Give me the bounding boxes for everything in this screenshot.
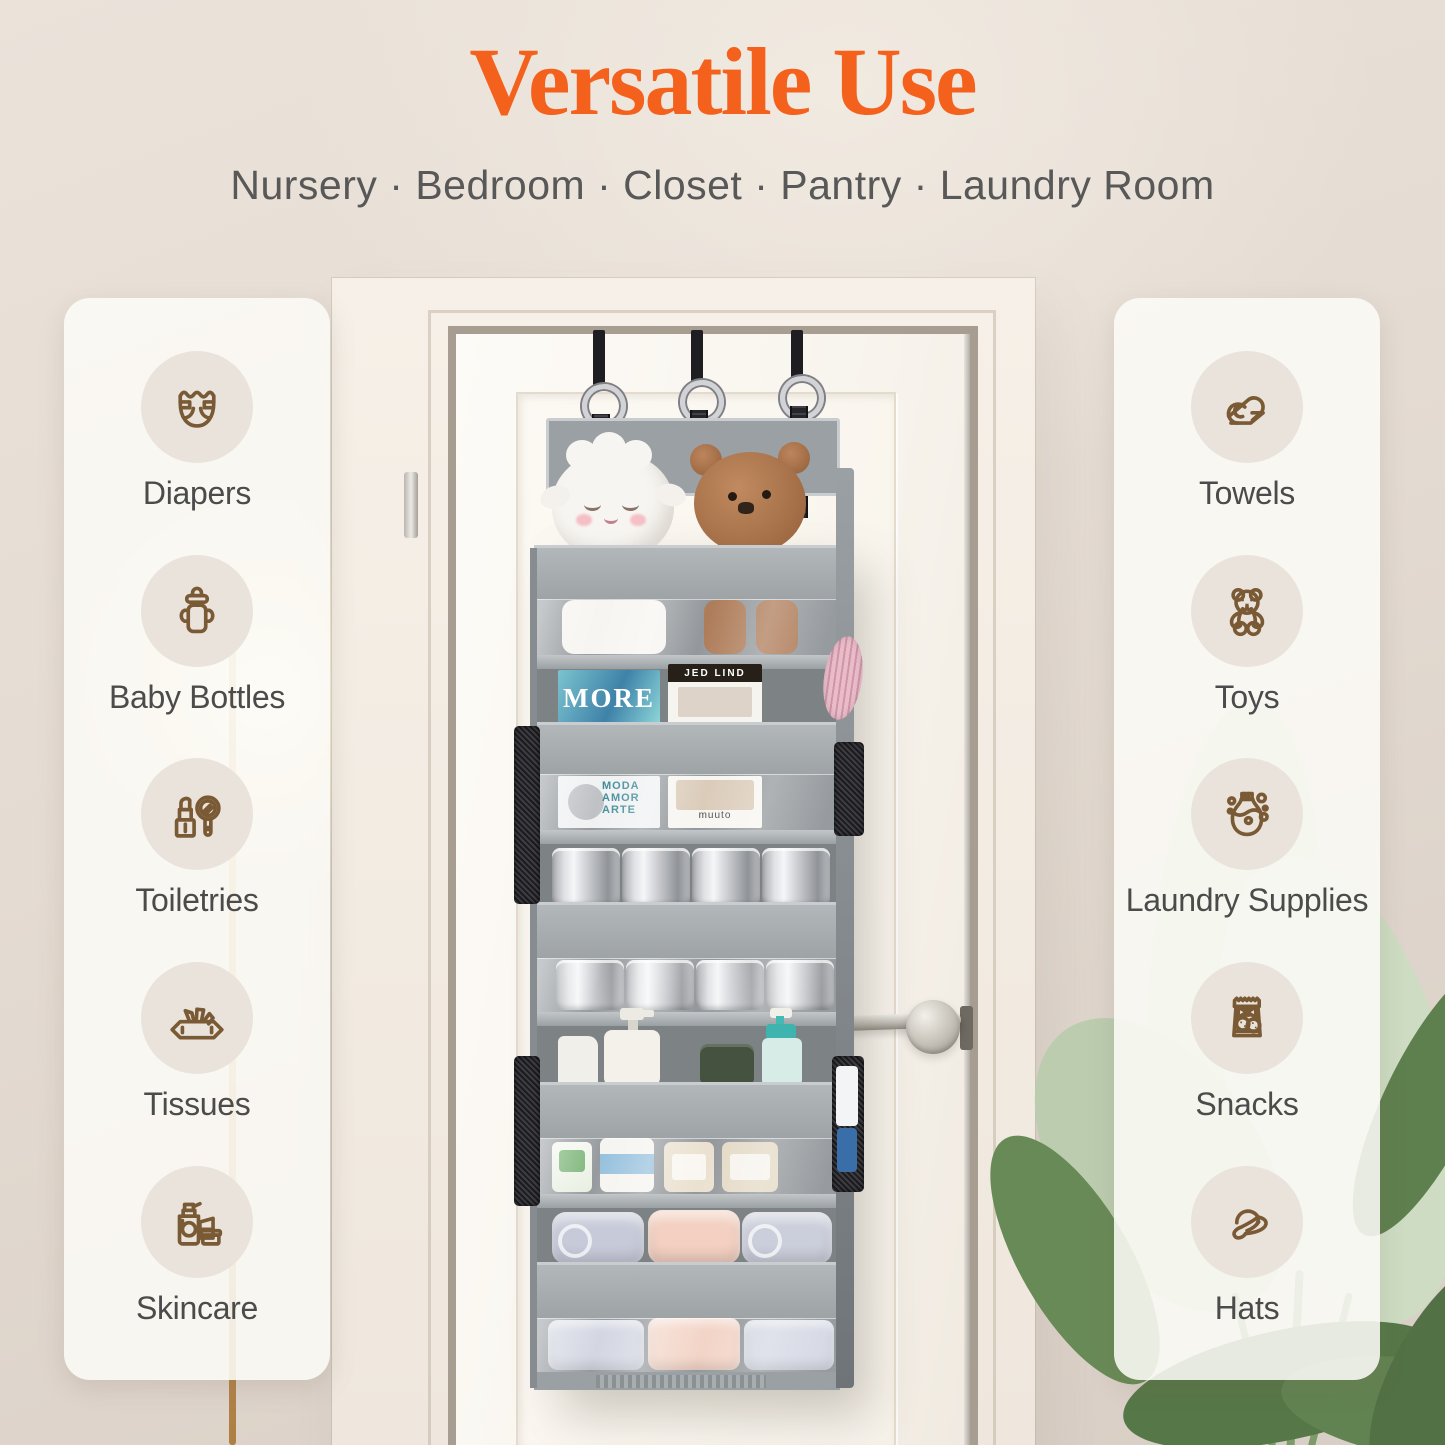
teddy-eye (728, 492, 737, 501)
towel-roll-end (558, 1224, 592, 1258)
lamb-cheek (576, 514, 592, 526)
mesh-pocket-item (837, 1128, 857, 1172)
panel-item-skincare: Skincare (136, 1166, 258, 1327)
panel-item-label: Skincare (136, 1290, 258, 1327)
panel-item-diapers: Diapers (141, 351, 253, 512)
pocket5-front-band (534, 1262, 840, 1321)
silver-canister (552, 848, 620, 906)
pocket2-plastic-sheen (534, 774, 840, 831)
baby-bottle-icon (141, 555, 253, 667)
lamb-mouth (604, 512, 618, 524)
magazine-more: MORE (558, 670, 660, 726)
silver-canister (762, 848, 830, 906)
lotion-pump-spout (642, 1010, 654, 1017)
pocket1-plastic-sheen (534, 599, 840, 656)
hanger-strap (691, 330, 703, 382)
book-cover-photo (678, 687, 752, 717)
right-use-panel: Towels Toys Laundry Supplies Snacks Hats (1114, 298, 1380, 1380)
silver-canister (622, 848, 690, 906)
panel-item-towels: Towels (1191, 351, 1303, 512)
hanger-strap (593, 330, 605, 386)
panel-item-label: Diapers (143, 475, 251, 512)
lamb-eye (622, 498, 639, 511)
book-jed-lind: JED LIND (668, 664, 762, 726)
pocket4-shelf (534, 1194, 840, 1208)
side-mesh-pocket (514, 726, 540, 904)
toiletries-icon (141, 758, 253, 870)
rolled-towel-icon (1191, 351, 1303, 463)
pocket5-plastic-sheen (534, 1318, 840, 1373)
green-bottle (700, 1044, 754, 1086)
snack-bag-icon (1191, 962, 1303, 1074)
door-hinge (404, 472, 418, 538)
page-subtitle: Nursery · Bedroom · Closet · Pantry · La… (0, 162, 1445, 209)
hanger-strap (791, 330, 803, 378)
organizer-bottom-ribbing (596, 1375, 766, 1388)
panel-item-label: Toiletries (135, 882, 258, 919)
skincare-icon (141, 1166, 253, 1278)
teal-bottle (762, 1038, 802, 1086)
white-tube (558, 1036, 598, 1088)
pocket4-plastic-sheen (534, 1138, 840, 1195)
book-title-band: JED LIND (668, 664, 762, 682)
teddy-eye (762, 490, 771, 499)
rolled-towel-gray (742, 1212, 832, 1264)
pocket3-plastic-sheen (534, 958, 840, 1013)
door-handle-rosette (906, 1000, 960, 1054)
lamb-eye (584, 498, 601, 511)
side-mesh-pocket (832, 1056, 864, 1192)
door-latch-plate (960, 1006, 973, 1050)
panel-item-tissues: Tissues (141, 962, 253, 1123)
panel-item-label: Toys (1215, 679, 1280, 716)
panel-item-baby-bottles: Baby Bottles (109, 555, 285, 716)
panel-item-laundry-supplies: Laundry Supplies (1126, 758, 1368, 919)
door-edge (964, 334, 970, 1445)
panel-item-label: Hats (1215, 1290, 1280, 1327)
silver-canister (692, 848, 760, 906)
teddy-nose (738, 502, 754, 514)
magazine-title: MORE (563, 683, 655, 714)
lamb-cheek (630, 514, 646, 526)
rolled-towel-pink (648, 1210, 740, 1264)
sun-hat-icon (1191, 1166, 1303, 1278)
panel-item-label: Laundry Supplies (1126, 882, 1368, 919)
mesh-pocket-item (836, 1066, 858, 1126)
side-mesh-pocket (514, 1056, 540, 1206)
panel-item-toiletries: Toiletries (135, 758, 258, 919)
pocket3-front-band (534, 902, 840, 961)
lotion-pump-head (620, 1008, 644, 1020)
pocket2-shelf (534, 830, 840, 844)
organizer-side-face (836, 468, 854, 1388)
left-use-panel: Diapers Baby Bottles Toiletries Tissues … (64, 298, 330, 1380)
panel-item-label: Tissues (144, 1086, 251, 1123)
panel-item-label: Snacks (1195, 1086, 1298, 1123)
towel-roll-end (748, 1224, 782, 1258)
pocket4-front-band (534, 1082, 840, 1141)
teddy-bear-icon (1191, 555, 1303, 667)
lamb-plush (552, 452, 674, 560)
panel-item-toys: Toys (1191, 555, 1303, 716)
panel-item-label: Towels (1199, 475, 1295, 512)
panel-item-hats: Hats (1191, 1166, 1303, 1327)
side-mesh-pocket (834, 742, 864, 836)
lamb-fluff (620, 440, 652, 470)
panel-item-snacks: Snacks (1191, 962, 1303, 1123)
pocket1-front-band (534, 545, 840, 602)
organizer-left-edge (530, 548, 537, 1388)
page-title: Versatile Use (0, 26, 1445, 137)
rolled-towel-gray (552, 1212, 644, 1264)
product-infographic: MORE JED LIND MODA AMOR ARTE muuto (0, 0, 1445, 1445)
diaper-icon (141, 351, 253, 463)
tissues-icon (141, 962, 253, 1074)
panel-item-label: Baby Bottles (109, 679, 285, 716)
laundry-detergent-icon (1191, 758, 1303, 870)
lotion-pump-bottle (604, 1030, 660, 1086)
pocket2-front-band (534, 722, 840, 777)
